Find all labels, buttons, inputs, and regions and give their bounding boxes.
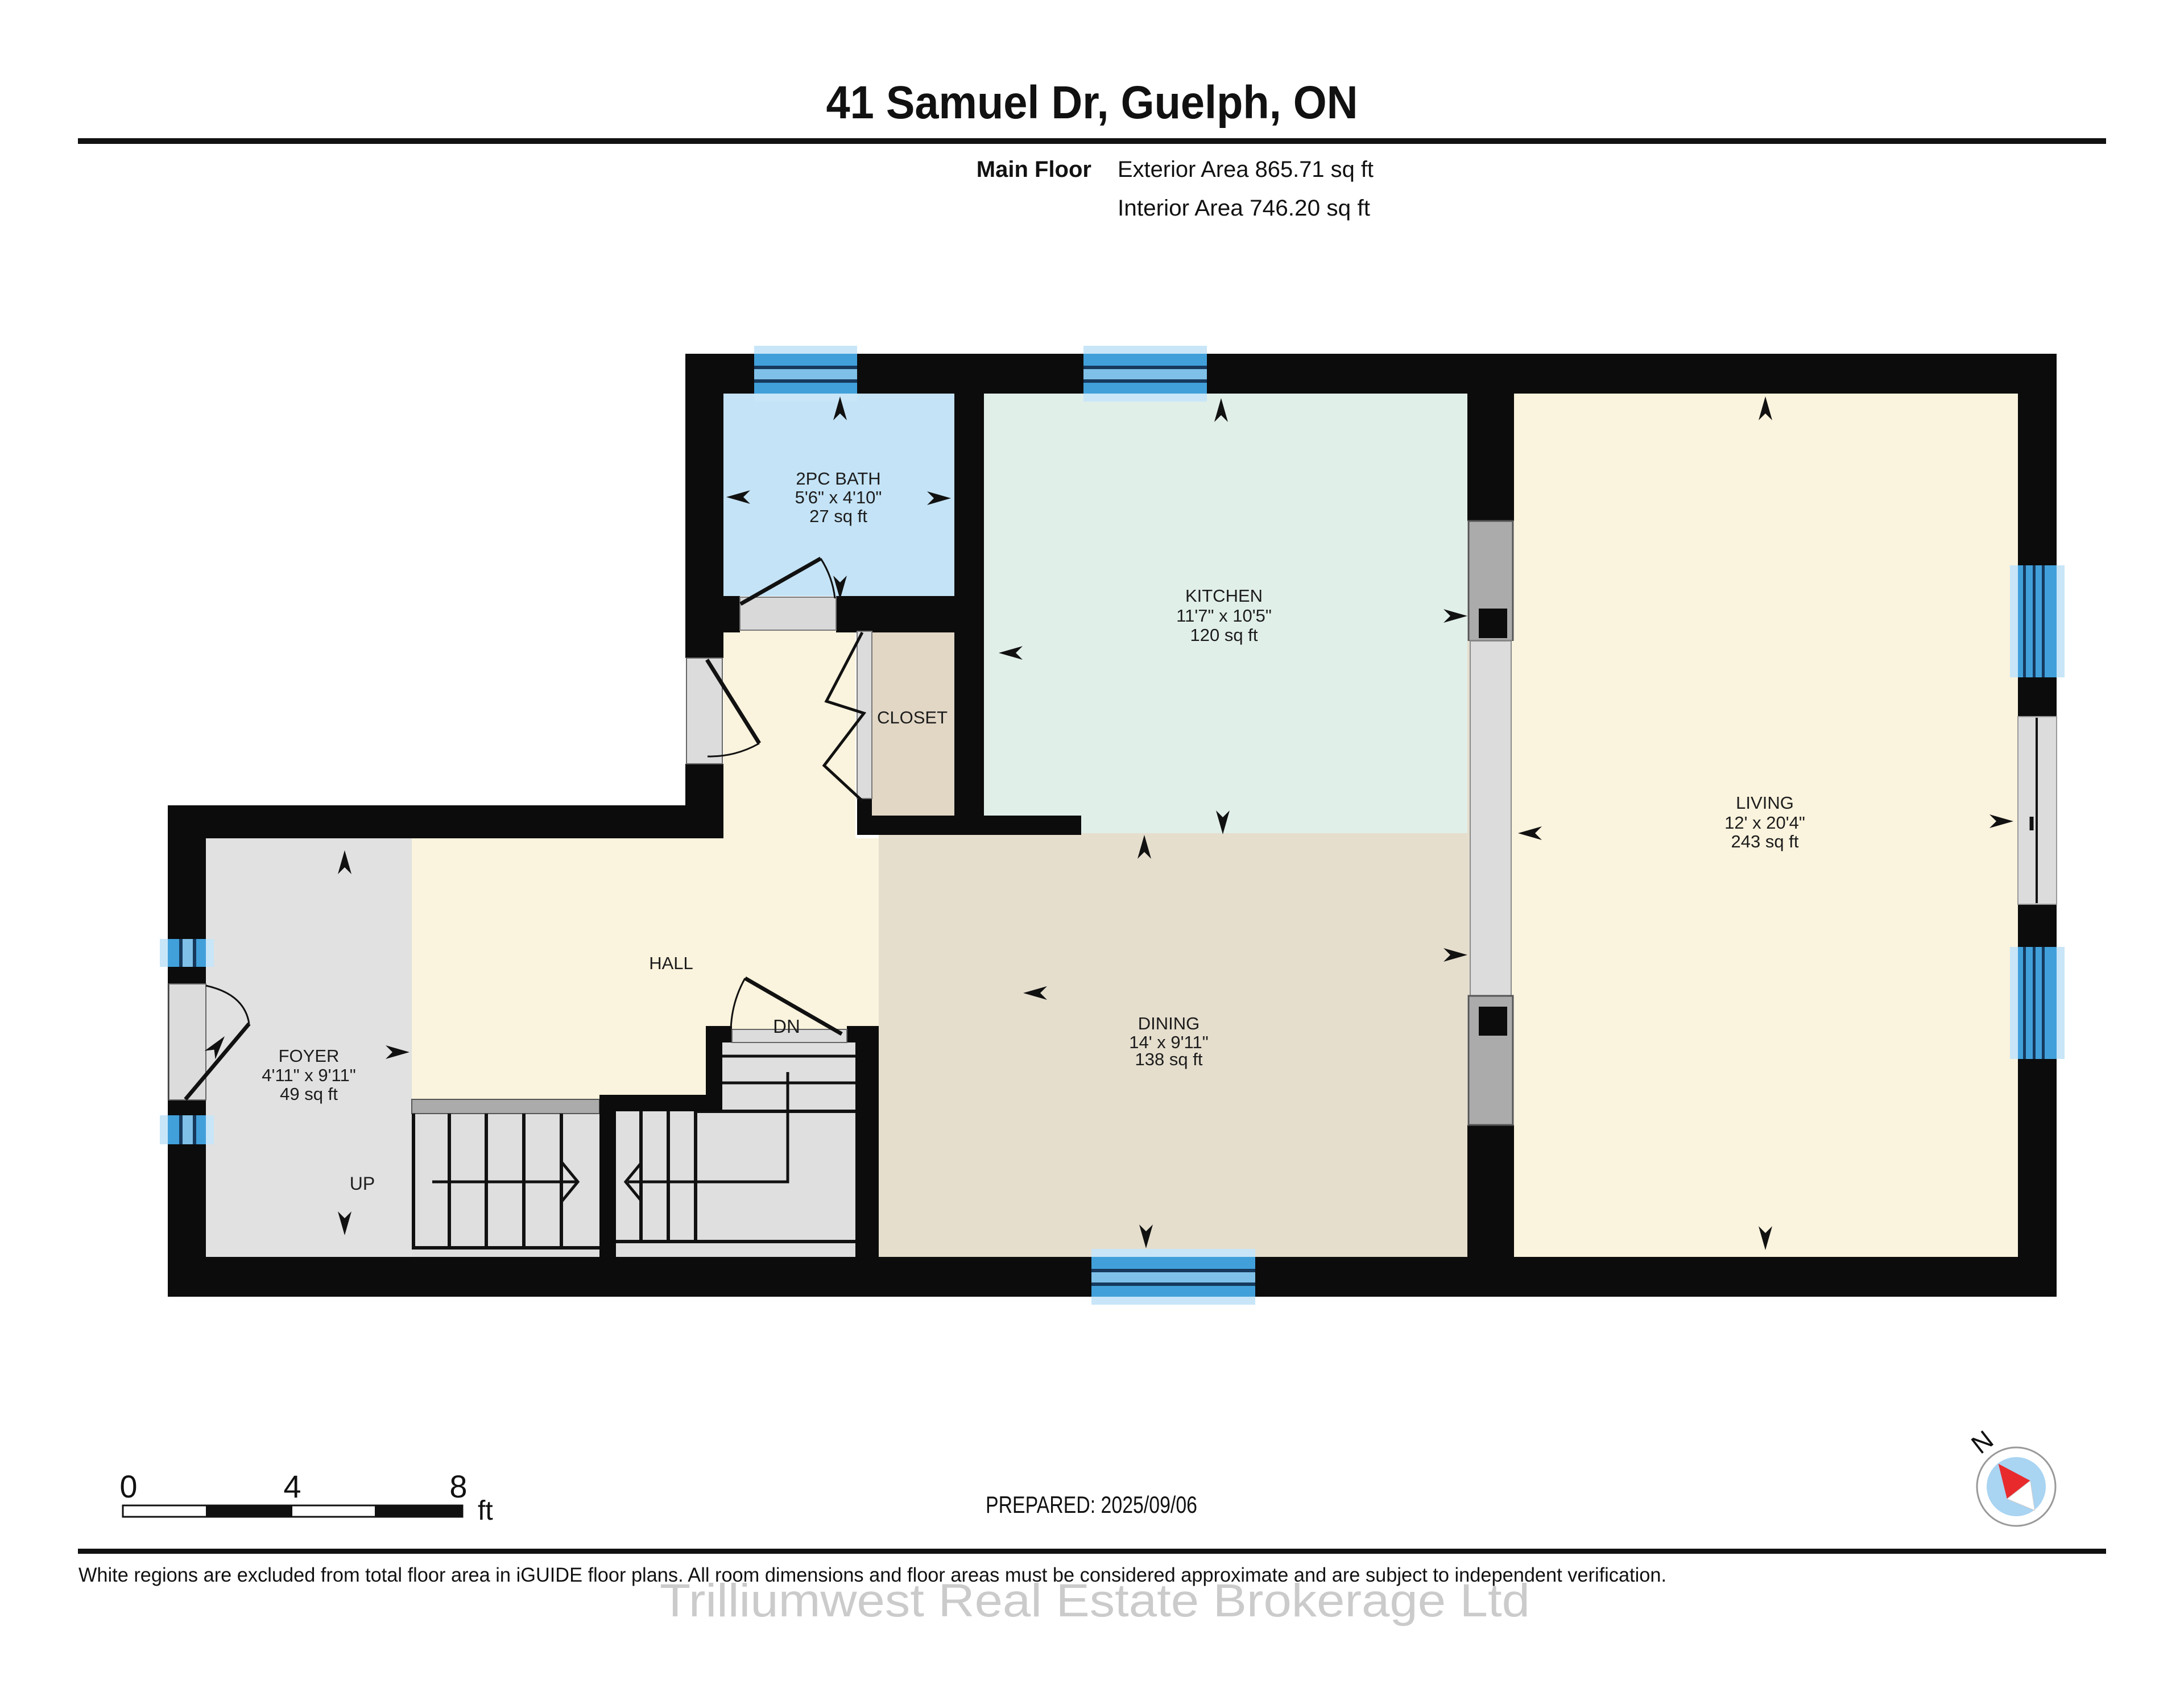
svg-text:27 sq ft: 27 sq ft: [809, 506, 867, 526]
svg-text:UP: UP: [350, 1173, 375, 1194]
svg-text:ft: ft: [478, 1496, 493, 1526]
svg-text:DN: DN: [773, 1016, 800, 1037]
svg-text:Main Floor: Main Floor: [977, 157, 1091, 182]
svg-text:49 sq ft: 49 sq ft: [280, 1084, 338, 1104]
svg-text:138 sq ft: 138 sq ft: [1135, 1049, 1203, 1069]
svg-text:KITCHEN: KITCHEN: [1185, 586, 1263, 606]
svg-text:DINING: DINING: [1138, 1013, 1200, 1033]
svg-text:5'6" x 4'10": 5'6" x 4'10": [795, 487, 882, 507]
svg-text:41 Samuel Dr, Guelph, ON: 41 Samuel Dr, Guelph, ON: [826, 77, 1358, 129]
svg-text:Interior Area 746.20 sq ft: Interior Area 746.20 sq ft: [1118, 196, 1370, 221]
svg-text:HALL: HALL: [649, 953, 693, 973]
svg-text:CLOSET: CLOSET: [877, 708, 948, 727]
svg-text:2PC BATH: 2PC BATH: [796, 469, 880, 489]
svg-text:FOYER: FOYER: [279, 1046, 340, 1066]
svg-text:120 sq ft: 120 sq ft: [1190, 625, 1258, 645]
svg-text:0: 0: [119, 1468, 137, 1504]
svg-text:White regions are excluded fro: White regions are excluded from total fl…: [78, 1564, 1666, 1586]
svg-text:4'11" x 9'11": 4'11" x 9'11": [262, 1065, 355, 1085]
svg-text:PREPARED: 2025/09/06: PREPARED: 2025/09/06: [986, 1491, 1197, 1518]
svg-text:4: 4: [283, 1468, 301, 1504]
svg-text:12' x 20'4": 12' x 20'4": [1724, 813, 1805, 833]
svg-text:11'7" x 10'5": 11'7" x 10'5": [1176, 606, 1272, 626]
svg-text:8: 8: [449, 1468, 467, 1504]
svg-text:LIVING: LIVING: [1736, 793, 1794, 813]
svg-text:243 sq ft: 243 sq ft: [1731, 831, 1799, 851]
svg-text:Exterior Area 865.71 sq ft: Exterior Area 865.71 sq ft: [1118, 157, 1374, 182]
